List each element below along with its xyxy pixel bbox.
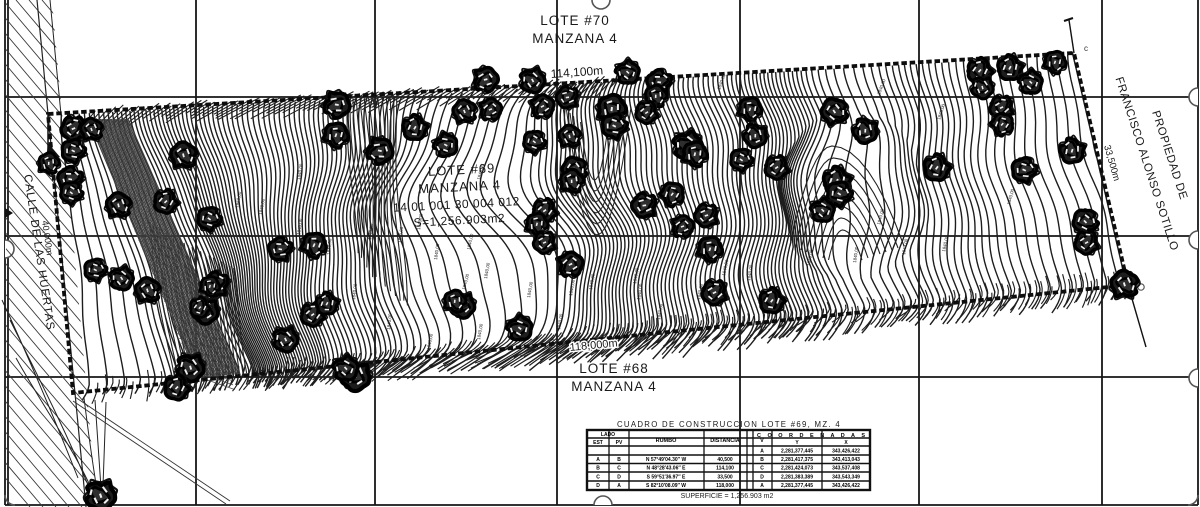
- svg-text:114,100: 114,100: [716, 466, 734, 472]
- svg-text:MANZANA 4: MANZANA 4: [571, 379, 657, 394]
- svg-text:N 48°28′43.06″ E: N 48°28′43.06″ E: [647, 466, 687, 472]
- svg-text:118,000: 118,000: [716, 483, 734, 489]
- svg-text:2,281,424,073: 2,281,424,073: [781, 466, 813, 472]
- svg-text:40,500: 40,500: [717, 457, 733, 463]
- svg-text:343,426,422: 343,426,422: [832, 449, 860, 455]
- svg-text:343,537,408: 343,537,408: [832, 466, 860, 472]
- svg-text:2,281,417,375: 2,281,417,375: [781, 457, 813, 463]
- svg-text:S 82°10′08.09″ W: S 82°10′08.09″ W: [646, 483, 686, 489]
- svg-text:2,281,377,445: 2,281,377,445: [781, 449, 813, 455]
- svg-text:2,281,377,445: 2,281,377,445: [781, 483, 813, 489]
- svg-text:N 57°49′04.30″ W: N 57°49′04.30″ W: [646, 457, 687, 463]
- svg-text:MANZANA 4: MANZANA 4: [532, 31, 618, 46]
- svg-text:343,426,422: 343,426,422: [832, 483, 860, 489]
- svg-text:SUPERFICIE = 1,256.903 m2: SUPERFICIE = 1,256.903 m2: [681, 493, 774, 500]
- svg-text:343,413,043: 343,413,043: [832, 457, 860, 463]
- svg-text:B: B: [760, 457, 764, 463]
- svg-text:D: D: [760, 474, 764, 480]
- svg-text:LADO: LADO: [601, 432, 615, 438]
- svg-text:C: C: [596, 474, 600, 480]
- svg-text:2,281,383,389: 2,281,383,389: [781, 474, 813, 480]
- svg-text:A: A: [617, 483, 621, 489]
- svg-text:C: C: [617, 466, 621, 472]
- svg-text:CUADRO DE CONSTRUCCION LOTE #: CUADRO DE CONSTRUCCION LOTE #69, MZ. 4: [617, 420, 841, 429]
- svg-text:LOTE #70: LOTE #70: [540, 13, 610, 28]
- svg-text:B: B: [617, 457, 621, 463]
- svg-text:A: A: [760, 449, 764, 455]
- svg-text:PV: PV: [616, 440, 623, 446]
- svg-text:C: C: [760, 466, 764, 472]
- svg-text:LOTE #68: LOTE #68: [579, 361, 649, 376]
- svg-text:33,500: 33,500: [717, 474, 733, 480]
- svg-text:A: A: [760, 483, 764, 489]
- svg-text:A: A: [596, 457, 600, 463]
- svg-text:D: D: [596, 483, 600, 489]
- svg-text:B: B: [596, 466, 600, 472]
- svg-text:343,543,349: 343,543,349: [832, 474, 860, 480]
- svg-text:DISTANCIA: DISTANCIA: [710, 438, 740, 444]
- svg-text:c: c: [1084, 44, 1088, 53]
- svg-text:D: D: [617, 474, 621, 480]
- svg-text:RUMBO: RUMBO: [656, 438, 677, 444]
- svg-text:EST: EST: [593, 440, 603, 446]
- svg-text:S 59°51′36.97″ E: S 59°51′36.97″ E: [647, 474, 686, 480]
